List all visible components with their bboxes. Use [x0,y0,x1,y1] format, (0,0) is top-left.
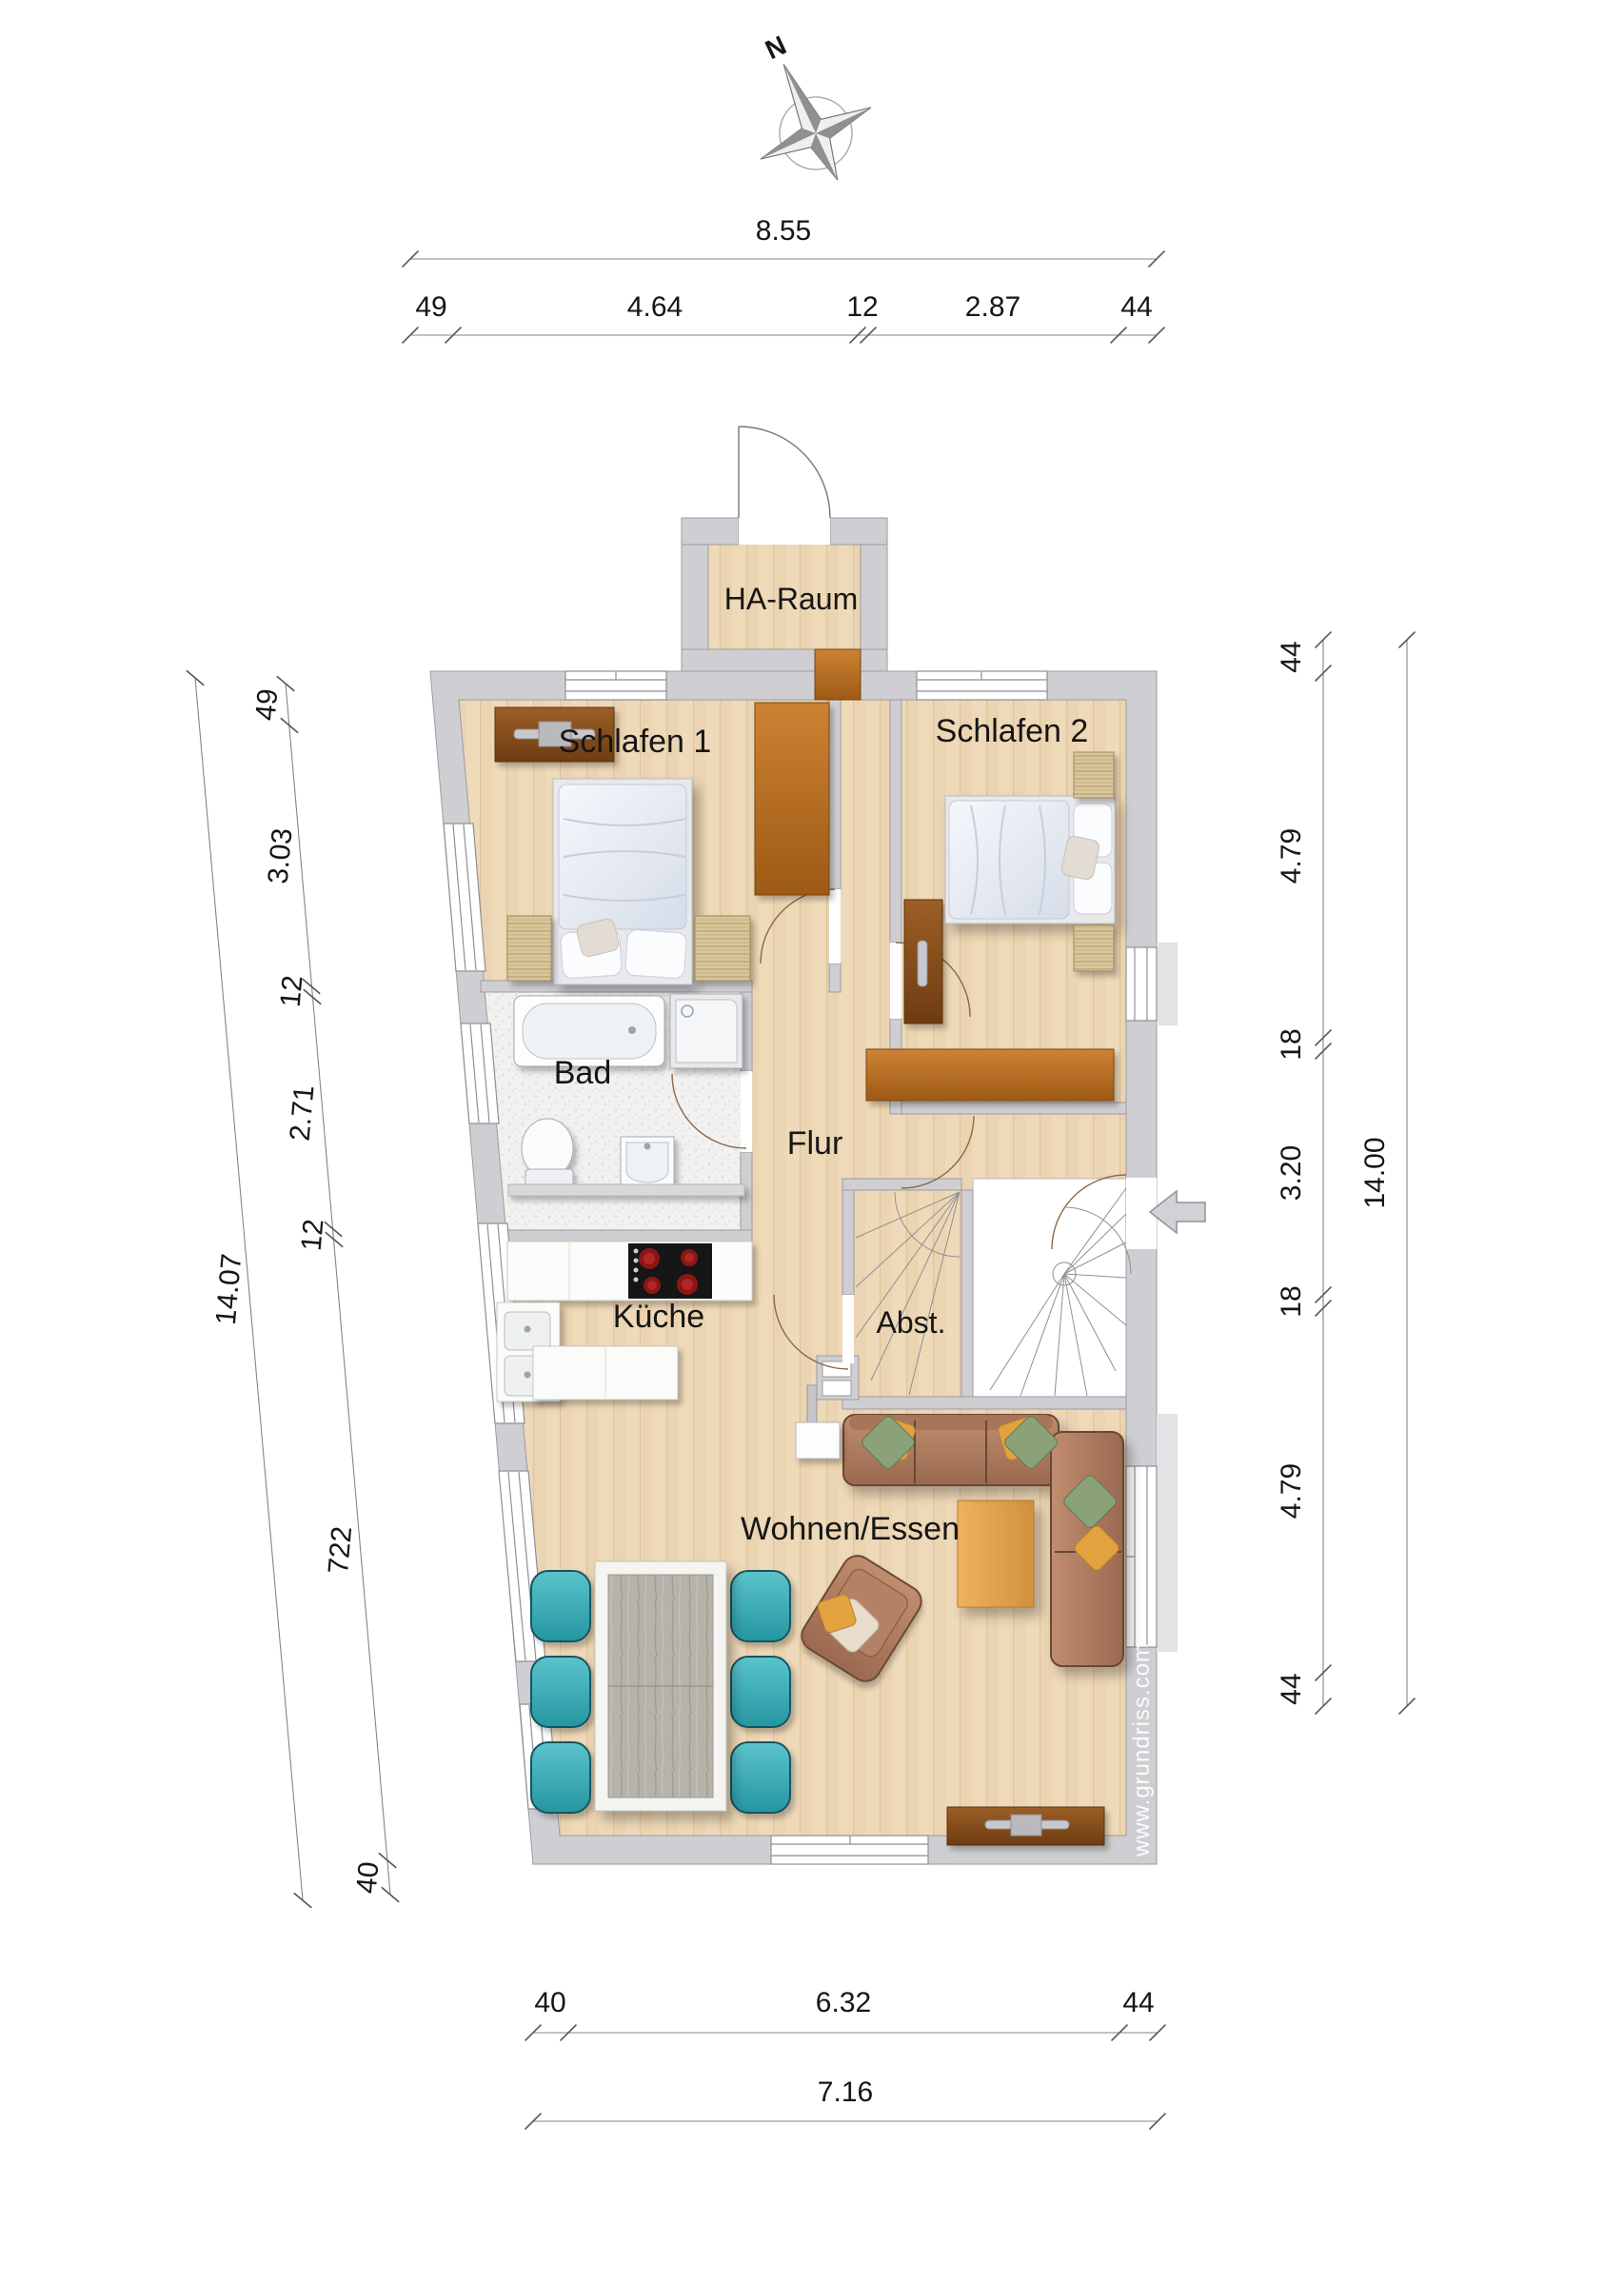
opening-bad-door [741,1071,752,1152]
floor-stairwell [973,1179,1126,1397]
nightstand-schlafen1-left [507,916,551,981]
dresser2-handle [918,941,927,986]
dim-left-6: 40 [351,1860,386,1895]
dim-left-total: 14.07 [210,1252,248,1326]
dim-left-5: 722 [323,1525,358,1576]
watermark-text: www.grundriss.com [1129,1642,1155,1858]
wall-abst-left-upper [842,1190,854,1295]
room-label-ha-raum: HA-Raum [724,582,858,616]
wall-schlafen1-corridor-upper [829,700,841,889]
dim-right-4: 18 [1276,1285,1307,1317]
side-table [796,1422,840,1459]
wall-bad-kueche [503,1230,752,1242]
nightstand-schlafen1-right [695,916,750,981]
dim-bottom-1: 6.32 [816,1987,871,2018]
window-bottom [771,1836,928,1864]
compass-north-label: N [761,30,790,65]
window-top-right [917,671,1047,700]
room-label-abst: Abst. [877,1305,946,1340]
dim-left-2: 12 [275,974,309,1008]
dim-left-3: 2.71 [285,1084,321,1142]
room-label-flur: Flur [787,1125,843,1162]
dim-right-0: 44 [1276,641,1307,672]
dim-bottom-0: 40 [534,1987,565,2018]
opening-ha-door [739,518,830,545]
compass-rose-icon: N [714,9,892,206]
shaft-hatch-2 [822,1381,851,1396]
shower [670,994,743,1068]
dining-table [595,1561,726,1811]
cooktop [628,1243,712,1299]
nightstand-schlafen2-top [1074,752,1114,798]
floor-plan-svg: HA-Raum Schlafen 1 Schlafen 2 Bad Flur K… [0,0,1624,2285]
room-label-bad: Bad [554,1055,612,1091]
dim-right-3: 3.20 [1276,1145,1307,1201]
room-label-schlafen1: Schlafen 1 [559,724,712,760]
stove-flue [807,1385,817,1423]
dim-right-6: 44 [1276,1673,1307,1704]
dim-left-4: 12 [296,1218,330,1252]
dim-top-0: 49 [415,291,446,323]
window-top-left [565,671,666,700]
threshold-ha [815,649,861,700]
dim-top-1: 4.64 [627,291,683,323]
room-label-wohnen: Wohnen/Essen [741,1511,960,1547]
dim-right-1: 4.79 [1276,828,1307,884]
wardrobe-garderobe [866,1049,1114,1101]
wall-living-top [842,1397,1126,1409]
annex-wall-top-left [682,518,739,545]
coffee-table [958,1500,1034,1607]
dim-right-5: 4.79 [1276,1463,1307,1519]
opening-schlafen1-door [829,889,841,964]
dim-bottom-2: 44 [1122,1987,1154,2018]
dim-top-4: 44 [1120,291,1152,323]
wall-schlafen2-bottom [901,1103,1126,1114]
bed-schlafen2 [945,796,1115,924]
bed-schlafen1 [553,779,692,984]
wall-schlafen2-left-upper [890,700,901,943]
washbasin [621,1137,674,1184]
room-label-kueche: Küche [613,1299,704,1335]
toilet [522,1119,573,1186]
bad-shelf [508,1184,744,1196]
dim-bottom-total: 7.16 [818,2076,873,2108]
dim-right-total: 14.00 [1359,1137,1391,1208]
window-right-schlafen2 [1126,943,1178,1025]
dim-left-0: 49 [250,687,285,722]
dim-left-1: 3.03 [263,827,299,885]
floor-plan-page: HA-Raum Schlafen 1 Schlafen 2 Bad Flur K… [0,0,1624,2285]
opening-schlafen2-door [890,943,901,1019]
entry-arrow-icon [1150,1191,1205,1233]
annex-wall-top-right [830,518,887,545]
dim-right-2: 18 [1276,1028,1307,1060]
door-arc-ha [739,427,830,518]
nightstand-schlafen2-bottom [1074,925,1114,971]
dim-top-total: 8.55 [756,215,811,247]
dim-top-3: 2.87 [965,291,1020,323]
wardrobe-schlafen1 [755,703,829,895]
dim-top-2: 12 [846,291,878,323]
wall-abst-stairs [961,1190,973,1397]
opening-abst-door [842,1295,854,1363]
wall-schlafen1-corridor-lower [829,964,841,992]
room-label-schlafen2: Schlafen 2 [936,713,1089,749]
